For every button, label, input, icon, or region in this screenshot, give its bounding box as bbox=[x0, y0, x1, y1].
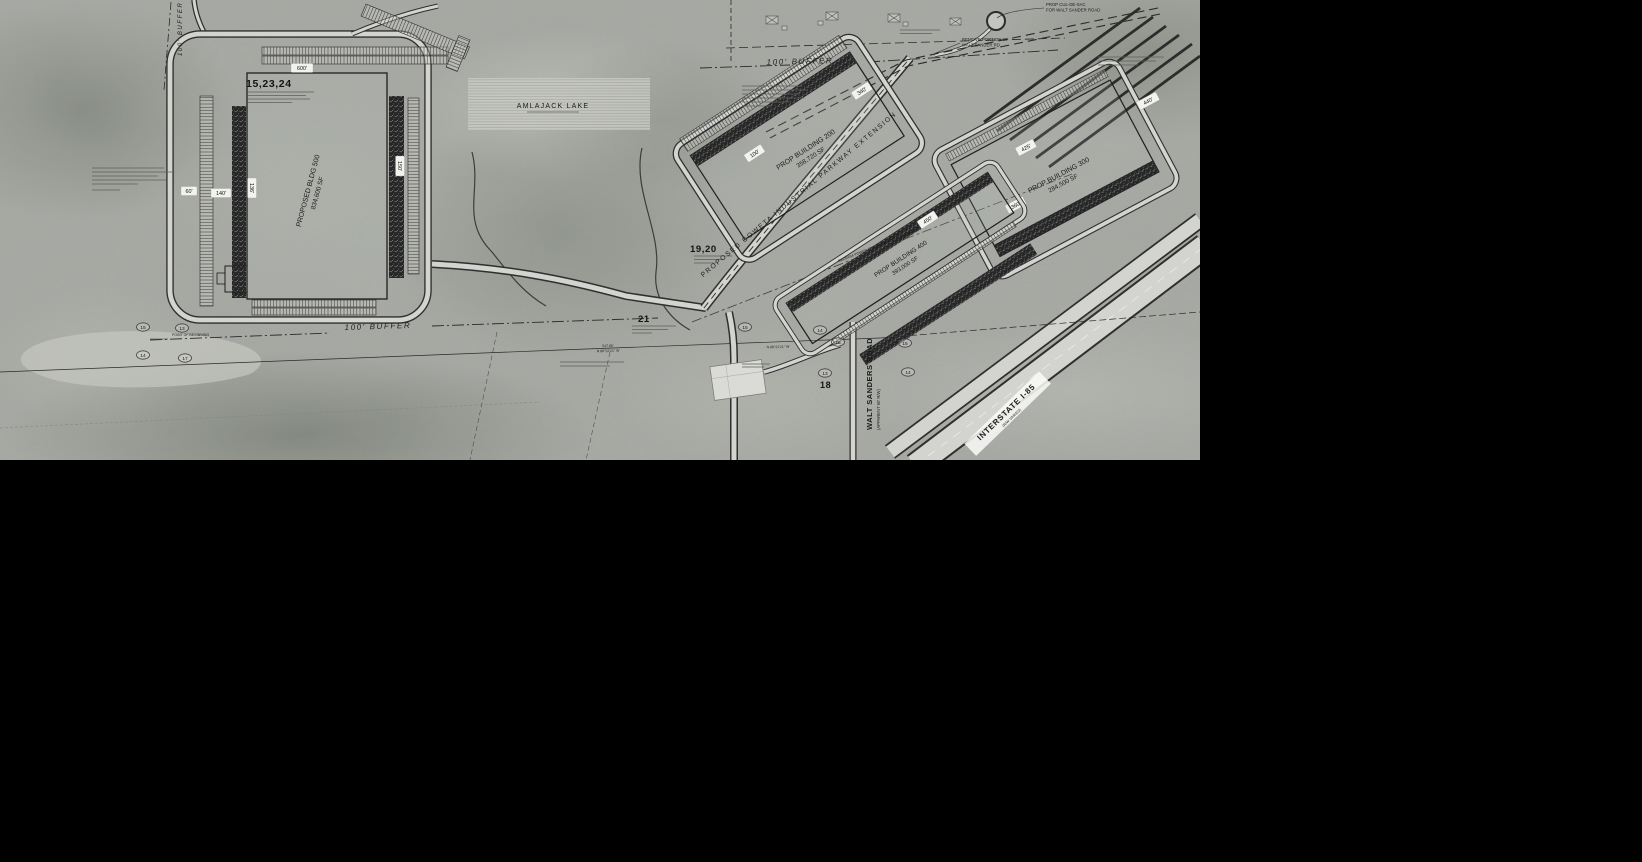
svg-text:547.80': 547.80' bbox=[602, 344, 614, 348]
svg-text:13: 13 bbox=[822, 371, 828, 377]
svg-text:N 88°22'21" W: N 88°22'21" W bbox=[597, 349, 621, 354]
svg-text:14: 14 bbox=[817, 328, 823, 334]
dimension-tag: 600' bbox=[291, 64, 313, 73]
survey-bearing: N 88°22'21" W bbox=[767, 345, 791, 350]
svg-text:600': 600' bbox=[297, 66, 307, 72]
svg-text:14: 14 bbox=[140, 353, 146, 359]
svg-text:15: 15 bbox=[140, 325, 146, 331]
parcel-label-15-23-24: 15,23,24 bbox=[246, 78, 292, 90]
site-plan-aerial-image[interactable]: PROPOSED BLDG 500 834,600 SF 15,23,24 PR… bbox=[0, 0, 1200, 460]
dimension-tag: 140' bbox=[211, 189, 231, 198]
svg-text:13: 13 bbox=[179, 326, 185, 332]
svg-text:FOR WALT SANDER ROAD: FOR WALT SANDER ROAD bbox=[1046, 8, 1100, 13]
dimension-tag: 150' bbox=[396, 156, 405, 176]
dimension-tag: 136' bbox=[248, 178, 257, 198]
svg-text:(APPARENT 60' R/W): (APPARENT 60' R/W) bbox=[876, 388, 881, 430]
parcel-label-19-20: 19,20 bbox=[690, 244, 717, 255]
svg-text:15: 15 bbox=[902, 341, 908, 347]
buffer-label-west: 100' BUFFER bbox=[178, 2, 184, 56]
svg-text:140': 140' bbox=[216, 191, 226, 197]
parcel-label-18: 18 bbox=[820, 380, 831, 390]
svg-text:17: 17 bbox=[182, 356, 188, 362]
svg-text:WALT SANDER RD.: WALT SANDER RD. bbox=[962, 43, 1001, 48]
svg-text:16: 16 bbox=[835, 340, 841, 346]
lake-label: AMLAJACK LAKE bbox=[517, 103, 589, 110]
svg-text:PROP CUL-DE-SAC: PROP CUL-DE-SAC bbox=[1046, 2, 1086, 7]
screenshot-canvas: PROPOSED BLDG 500 834,600 SF 15,23,24 PR… bbox=[0, 0, 1642, 862]
svg-text:14: 14 bbox=[905, 370, 911, 376]
pob-note: POINT OF BEGINNING bbox=[172, 333, 209, 337]
dimension-tag: 60' bbox=[181, 187, 197, 196]
svg-text:60': 60' bbox=[185, 189, 192, 195]
svg-text:WALT SANDERS ROAD: WALT SANDERS ROAD bbox=[865, 338, 874, 430]
svg-text:150': 150' bbox=[396, 161, 402, 171]
buffer-label-top: 100' BUFFER bbox=[766, 56, 833, 67]
svg-text:100' BUFFER: 100' BUFFER bbox=[178, 2, 184, 56]
svg-text:15: 15 bbox=[742, 325, 748, 331]
svg-text:136': 136' bbox=[248, 183, 254, 193]
existing-building bbox=[710, 360, 766, 401]
site-plan-drawing: PROPOSED BLDG 500 834,600 SF 15,23,24 PR… bbox=[0, 0, 1200, 460]
svg-text:REMOVE PORTION OF: REMOVE PORTION OF bbox=[962, 37, 1009, 42]
parcel-label-21: 21 bbox=[638, 314, 650, 325]
